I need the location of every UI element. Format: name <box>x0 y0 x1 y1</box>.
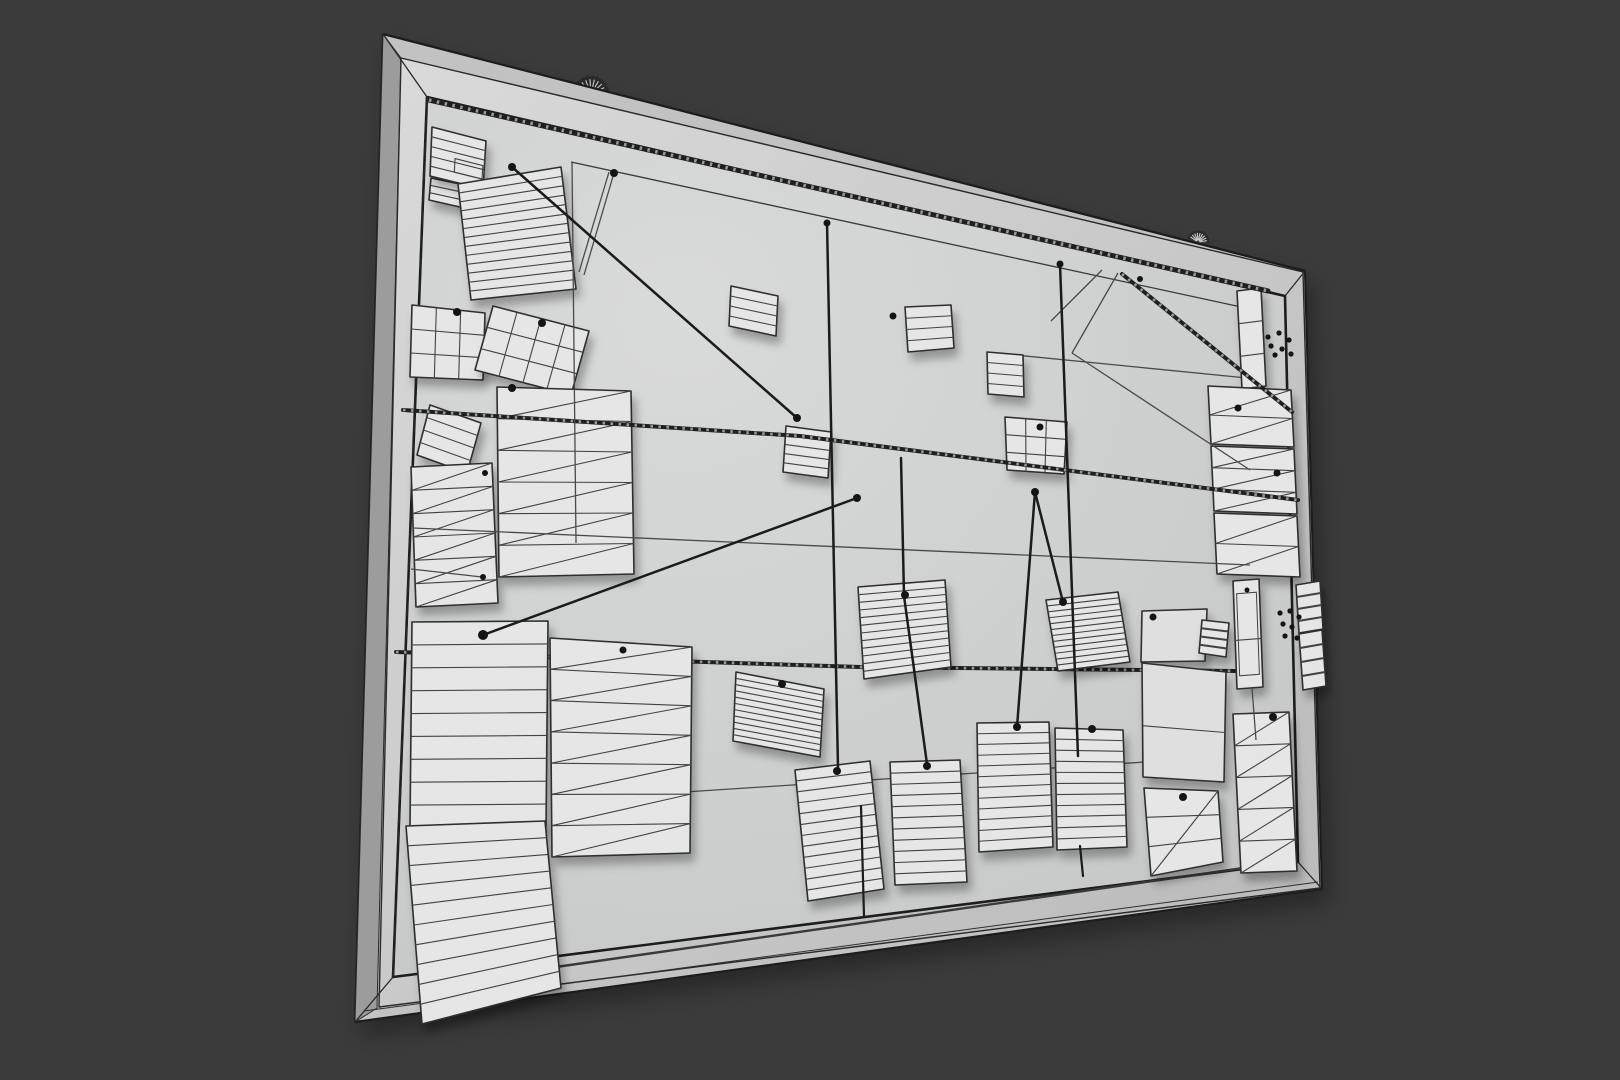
push-pin <box>1274 470 1281 477</box>
paper-note-19 <box>1237 288 1266 389</box>
paper-note-33 <box>1144 788 1223 876</box>
paper-note-24 <box>1142 663 1226 782</box>
push-pin <box>1150 614 1157 621</box>
paper-note-3 <box>410 305 485 380</box>
paper-note-18 <box>1046 592 1130 671</box>
paper-note-8 <box>410 621 548 828</box>
push-pin <box>923 762 931 770</box>
paper-note-12 <box>905 305 954 352</box>
push-pin <box>508 384 516 392</box>
push-pin <box>453 308 461 316</box>
push-pin <box>853 494 861 502</box>
paper-note-34 <box>1233 712 1297 873</box>
paper-note-10 <box>550 638 692 857</box>
push-pin <box>1059 598 1067 606</box>
paper-note-32 <box>1055 728 1127 850</box>
board-svg <box>0 0 1620 1080</box>
push-pin <box>793 414 801 422</box>
push-pin <box>1179 793 1187 801</box>
paper-note-27 <box>1296 581 1323 633</box>
push-pin <box>610 169 618 177</box>
push-pin <box>901 591 909 599</box>
push-pin <box>890 313 897 320</box>
push-pin <box>1137 276 1143 282</box>
push-pin <box>478 630 488 640</box>
push-pin <box>620 647 627 654</box>
push-pin <box>833 767 841 775</box>
push-pin <box>508 163 516 171</box>
push-pin <box>778 680 786 688</box>
paper-note-22 <box>1214 513 1300 577</box>
push-pin <box>824 220 831 227</box>
push-pin <box>1057 261 1064 268</box>
push-pin <box>1088 725 1096 733</box>
paper-note-29 <box>795 761 884 901</box>
paper-note-26 <box>1233 579 1263 689</box>
push-pin <box>1235 405 1242 412</box>
render-stage <box>0 0 1620 1080</box>
paper-note-25 <box>1199 620 1229 657</box>
push-pin <box>482 470 488 476</box>
push-pin <box>1037 424 1044 431</box>
paper-note-30 <box>890 760 967 885</box>
push-pin <box>480 574 486 580</box>
paper-note-31 <box>977 722 1053 852</box>
push-pin <box>538 319 546 327</box>
push-pin <box>1245 588 1250 593</box>
paper-note-20 <box>1208 386 1294 447</box>
paper-note-13 <box>987 352 1024 397</box>
paper-note-6 <box>411 463 498 607</box>
push-pin <box>1031 488 1039 496</box>
paper-note-28 <box>1299 630 1326 690</box>
paper-note-9 <box>406 821 561 1024</box>
push-pin <box>1013 723 1021 731</box>
push-pin <box>1269 713 1277 721</box>
paper-note-2 <box>458 167 576 300</box>
paper-note-21 <box>1211 446 1297 514</box>
